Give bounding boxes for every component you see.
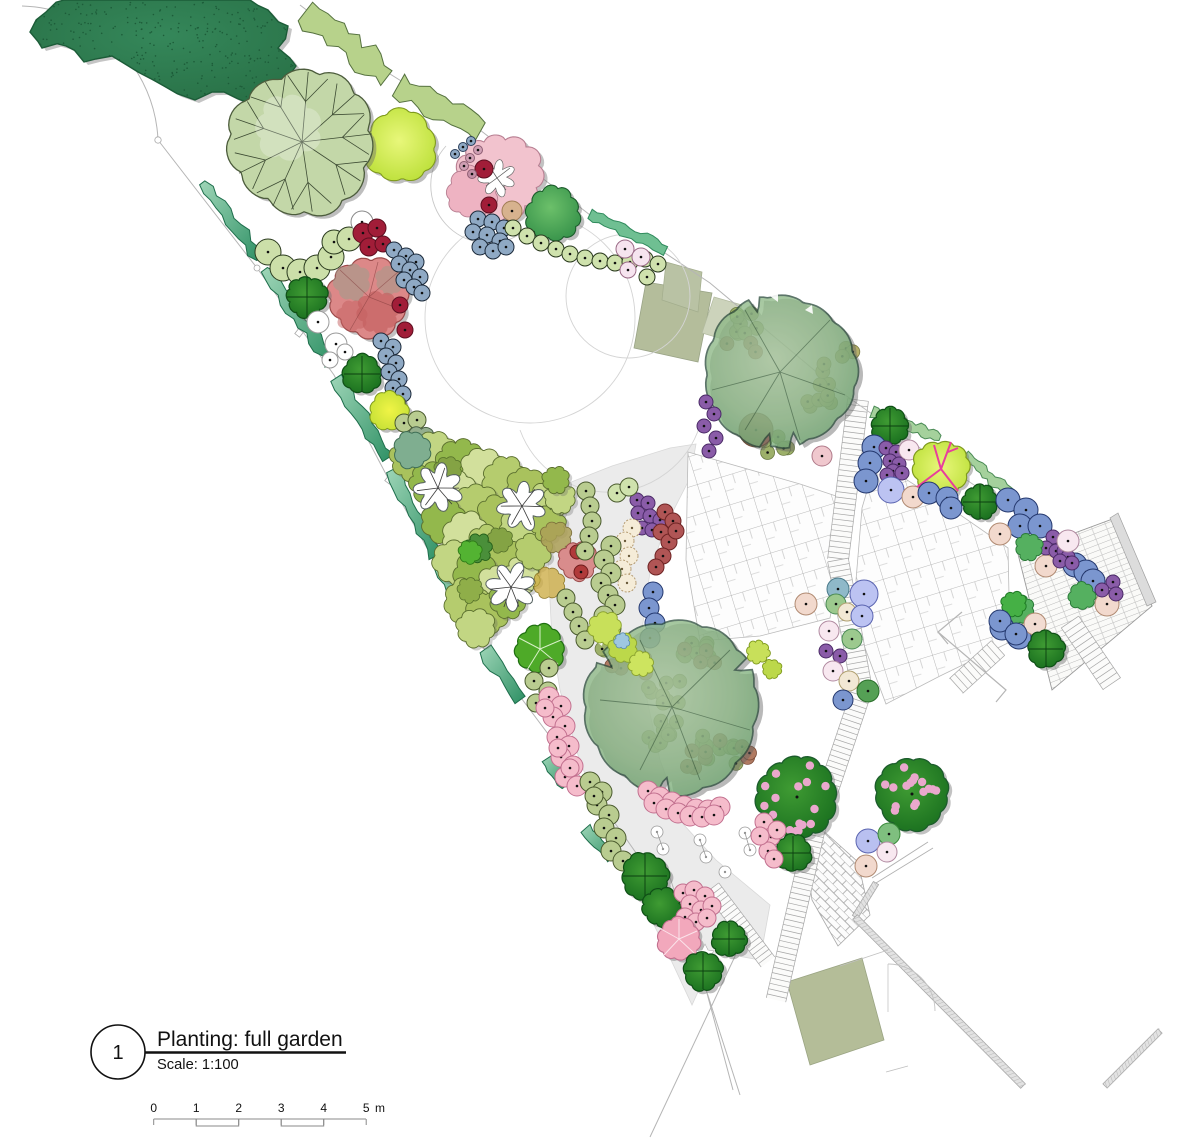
svg-text:m: m [375, 1101, 385, 1115]
svg-text:Scale: 1:100: Scale: 1:100 [157, 1057, 239, 1073]
svg-text:1: 1 [193, 1101, 200, 1115]
svg-text:2: 2 [235, 1101, 242, 1115]
svg-text:Planting: full garden: Planting: full garden [157, 1028, 343, 1051]
svg-text:5: 5 [363, 1101, 370, 1115]
svg-text:4: 4 [320, 1101, 327, 1115]
svg-text:3: 3 [278, 1101, 285, 1115]
svg-text:1: 1 [112, 1042, 123, 1064]
svg-text:0: 0 [150, 1101, 157, 1115]
